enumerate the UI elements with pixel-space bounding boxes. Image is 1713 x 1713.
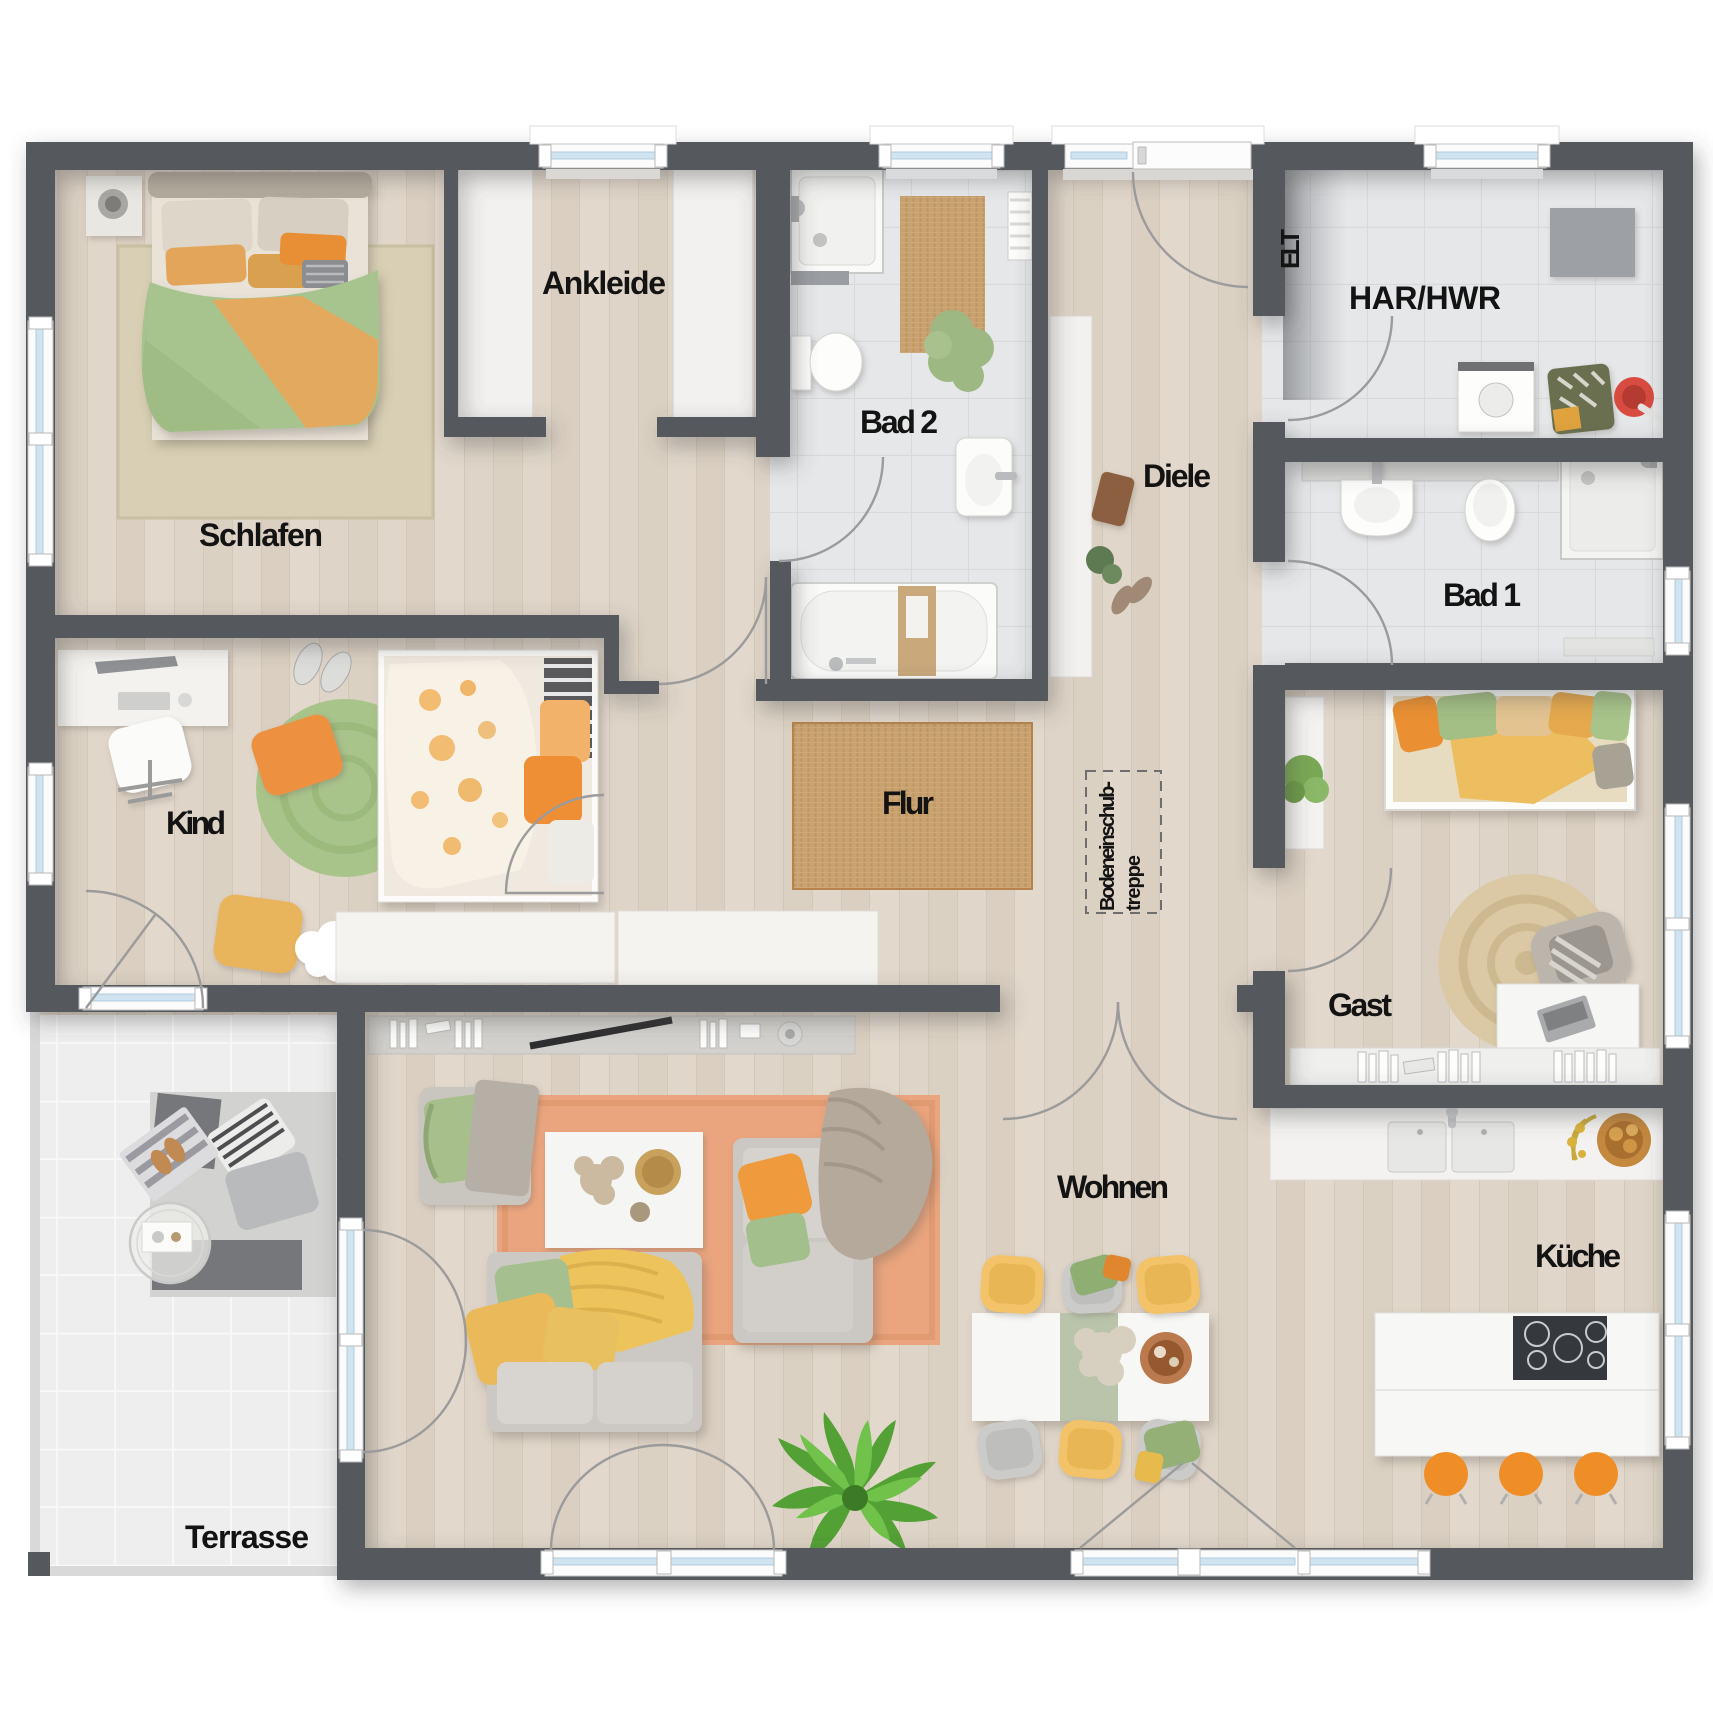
svg-text:treppe: treppe [1123,855,1145,911]
svg-text:Bad 2: Bad 2 [860,404,938,440]
svg-text:Bodeneinschub-: Bodeneinschub- [1097,781,1119,911]
svg-text:Küche: Küche [1535,1238,1621,1274]
svg-text:Flur: Flur [882,785,934,821]
svg-text:Bad 1: Bad 1 [1443,577,1521,613]
svg-text:Ankleide: Ankleide [542,265,666,301]
svg-text:Wohnen: Wohnen [1057,1169,1169,1205]
svg-text:HAR/HWR: HAR/HWR [1349,280,1501,316]
svg-text:Diele: Diele [1143,458,1211,494]
svg-text:Terrasse: Terrasse [185,1519,309,1555]
svg-text:Schlafen: Schlafen [199,517,323,553]
svg-text:Gast: Gast [1328,987,1392,1023]
svg-text:ELT: ELT [1275,229,1305,269]
svg-text:Kind: Kind [166,805,226,841]
